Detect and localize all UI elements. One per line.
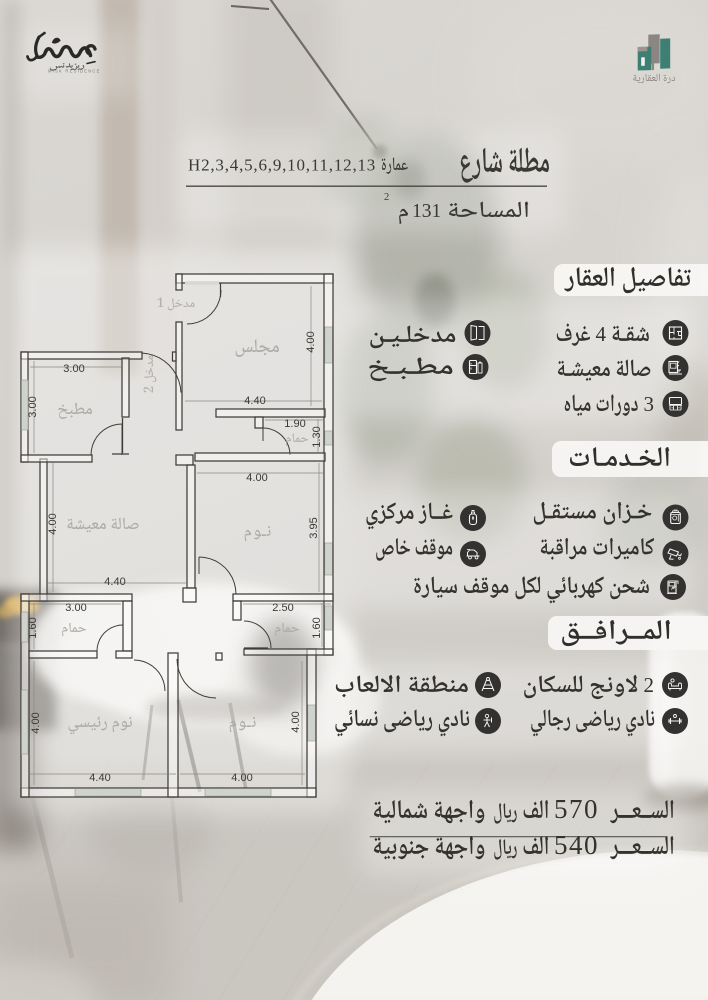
svg-text:3.00: 3.00	[63, 363, 84, 375]
svg-text:1.30: 1.30	[311, 426, 323, 447]
svg-text:4.00: 4.00	[290, 711, 302, 732]
svg-text:1.60: 1.60	[311, 617, 323, 638]
svg-text:2.50: 2.50	[272, 602, 293, 614]
svg-text:3: 3	[644, 392, 655, 416]
svg-text:MISK RESIDENCE: MISK RESIDENCE	[48, 69, 101, 74]
svg-text:540: 540	[554, 830, 599, 860]
svg-text:1.90: 1.90	[284, 418, 305, 430]
svg-text:4: 4	[596, 322, 607, 346]
svg-text:2: 2	[644, 673, 655, 697]
svg-text:4.00: 4.00	[30, 712, 42, 733]
svg-text:570: 570	[554, 794, 599, 824]
svg-text:4.40: 4.40	[89, 772, 110, 784]
svg-text:1.60: 1.60	[27, 617, 39, 638]
svg-text:3.00: 3.00	[27, 396, 39, 417]
svg-text:131: 131	[412, 201, 441, 222]
svg-text:4.00: 4.00	[231, 772, 252, 784]
svg-text:3.00: 3.00	[65, 602, 86, 614]
svg-text:4.40: 4.40	[104, 576, 125, 588]
svg-text:H2,3,4,5,6,9,10,11,12,13: H2,3,4,5,6,9,10,11,12,13	[188, 156, 376, 175]
svg-text:4.40: 4.40	[244, 395, 265, 407]
svg-text:4.00: 4.00	[305, 331, 317, 352]
svg-text:2: 2	[384, 192, 389, 203]
svg-text:4.00: 4.00	[47, 513, 59, 534]
svg-text:4.00: 4.00	[246, 472, 267, 484]
svg-text:3.95: 3.95	[308, 517, 320, 538]
